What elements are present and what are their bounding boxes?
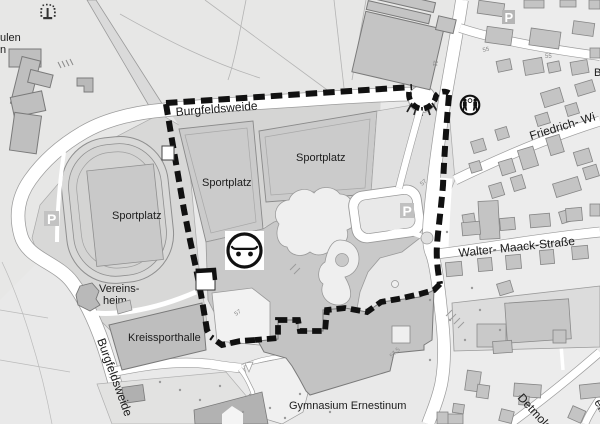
svg-text:P: P	[47, 211, 56, 227]
svg-text:ulen: ulen	[0, 32, 21, 44]
svg-text:Sportplatz: Sportplatz	[112, 210, 162, 222]
svg-text:Gymnasium Ernestinum: Gymnasium Ernestinum	[289, 400, 406, 412]
svg-text:n: n	[0, 44, 6, 56]
svg-text:Vereins-: Vereins-	[99, 283, 140, 295]
svg-text:Sportplatz: Sportplatz	[202, 177, 252, 189]
svg-text:Kreissporthalle: Kreissporthalle	[128, 332, 201, 344]
svg-text:P: P	[403, 203, 412, 219]
svg-text:B: B	[594, 67, 600, 79]
svg-text:55: 55	[545, 54, 552, 60]
svg-text:Sportplatz: Sportplatz	[296, 152, 346, 164]
svg-text:P: P	[505, 10, 514, 25]
